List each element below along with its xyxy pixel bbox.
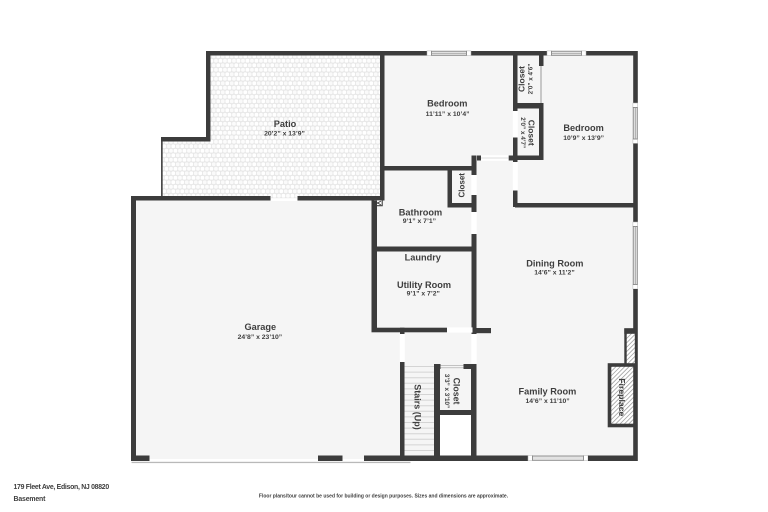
svg-text:Bathroom: Bathroom <box>399 208 442 218</box>
svg-text:179 Fleet Ave, Edison, NJ 0882: 179 Fleet Ave, Edison, NJ 08820 <box>14 484 110 491</box>
svg-text:Bedroom: Bedroom <box>563 123 603 133</box>
svg-text:9’1” x 7’1”: 9’1” x 7’1” <box>403 218 436 225</box>
svg-text:Laundry: Laundry <box>405 252 442 262</box>
svg-text:Utility Room: Utility Room <box>397 280 451 290</box>
svg-text:3’3” x 3’10”: 3’3” x 3’10” <box>443 374 450 408</box>
svg-text:9’1” x 7’2”: 9’1” x 7’2” <box>407 290 440 297</box>
svg-text:Basement: Basement <box>14 496 47 503</box>
svg-text:Closet: Closet <box>458 173 467 198</box>
svg-text:Closet: Closet <box>517 66 527 92</box>
svg-text:20’2” x 13’9”: 20’2” x 13’9” <box>264 131 305 138</box>
svg-text:Closet: Closet <box>527 120 537 146</box>
svg-text:Closet: Closet <box>452 378 462 405</box>
svg-text:2’0” x 4’7”: 2’0” x 4’7” <box>519 117 526 148</box>
svg-text:14’6” x 11’2”: 14’6” x 11’2” <box>534 270 574 277</box>
svg-text:Fireplace: Fireplace <box>617 378 627 416</box>
svg-text:Dining Room: Dining Room <box>526 258 583 268</box>
svg-text:Floor plans/tour cannot be use: Floor plans/tour cannot be used for buil… <box>259 493 509 499</box>
svg-text:10’9” x 13’9”: 10’9” x 13’9” <box>563 135 604 142</box>
svg-text:Family Room: Family Room <box>519 386 577 396</box>
svg-text:Patio: Patio <box>274 119 297 129</box>
svg-text:Bedroom: Bedroom <box>427 98 467 108</box>
svg-text:14’6” x 11’10”: 14’6” x 11’10” <box>525 398 569 405</box>
svg-text:11’11” x 10’4”: 11’11” x 10’4” <box>426 111 470 118</box>
svg-text:Garage: Garage <box>244 322 276 332</box>
svg-text:Stairs (Up): Stairs (Up) <box>412 384 422 430</box>
svg-text:2’0” x 4’6”: 2’0” x 4’6” <box>527 64 534 95</box>
svg-text:24’8” x 23’10”: 24’8” x 23’10” <box>238 334 283 341</box>
